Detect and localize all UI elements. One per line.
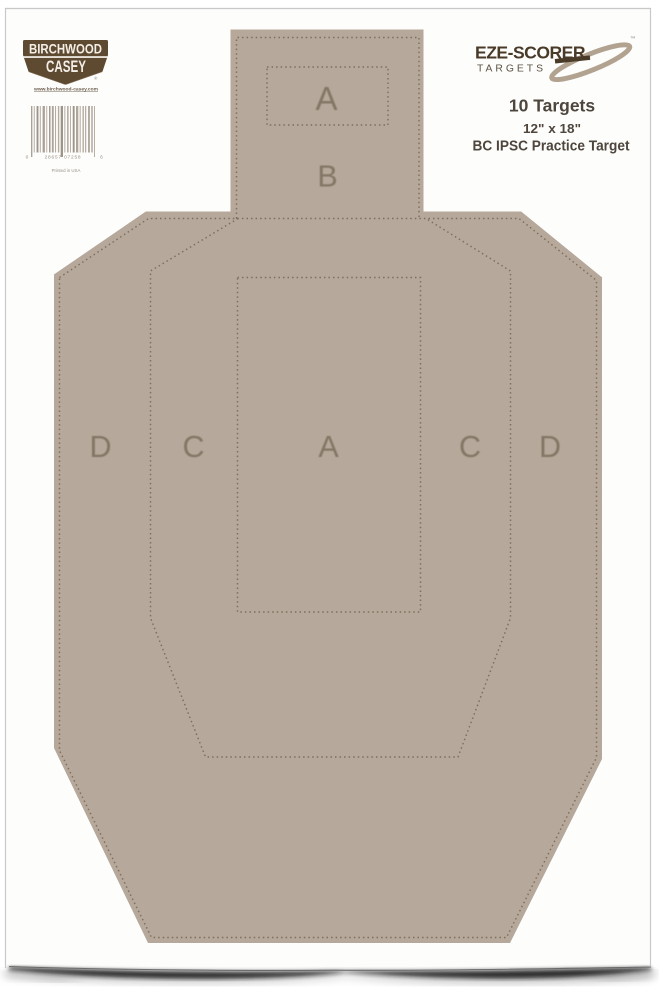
svg-text:A: A <box>315 80 337 117</box>
svg-text:BC IPSC Practice Target: BC IPSC Practice Target <box>473 139 630 155</box>
svg-text:D: D <box>89 430 111 464</box>
svg-text:D: D <box>539 430 561 464</box>
svg-text:EZE-SCORER: EZE-SCORER <box>475 43 586 63</box>
svg-text:™: ™ <box>630 36 636 42</box>
svg-text:TARGETS: TARGETS <box>477 63 546 75</box>
svg-text:Printed in USA: Printed in USA <box>52 168 81 173</box>
svg-text:C: C <box>459 430 481 464</box>
svg-text:C: C <box>182 430 204 464</box>
svg-text:B: B <box>317 160 337 194</box>
svg-text:12" x 18": 12" x 18" <box>523 122 581 136</box>
svg-text:www.birchwood-casey.com: www.birchwood-casey.com <box>33 87 98 93</box>
svg-text:BIRCHWOOD: BIRCHWOOD <box>29 42 102 57</box>
svg-text:0: 0 <box>26 155 29 161</box>
svg-text:CASEY: CASEY <box>46 58 86 76</box>
svg-text:10 Targets: 10 Targets <box>509 96 596 116</box>
svg-text:6: 6 <box>100 155 103 161</box>
svg-text:A: A <box>318 430 339 464</box>
svg-text:28657 07258: 28657 07258 <box>45 155 82 161</box>
